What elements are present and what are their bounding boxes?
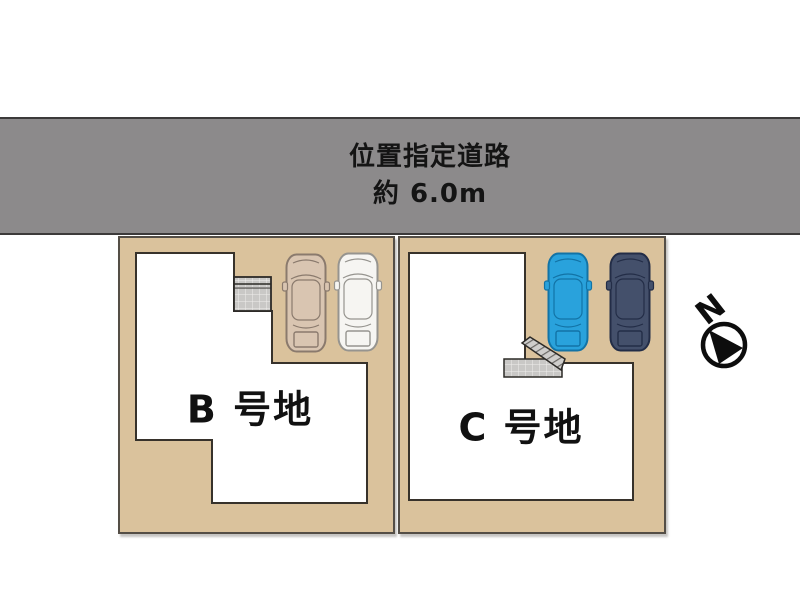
lot-b-label: B 号地 bbox=[187, 379, 313, 434]
car-white bbox=[335, 254, 382, 351]
car-beige bbox=[283, 255, 330, 352]
car-navy bbox=[607, 254, 654, 351]
lot-c-label: C 号地 bbox=[458, 397, 583, 452]
north-compass: N bbox=[688, 286, 745, 366]
site-plan-canvas: 位置指定道路 約 6.0m bbox=[0, 0, 800, 600]
car-blue bbox=[545, 254, 592, 351]
plan-overlay: N bbox=[0, 0, 800, 600]
entrance-porch-b bbox=[234, 277, 271, 311]
